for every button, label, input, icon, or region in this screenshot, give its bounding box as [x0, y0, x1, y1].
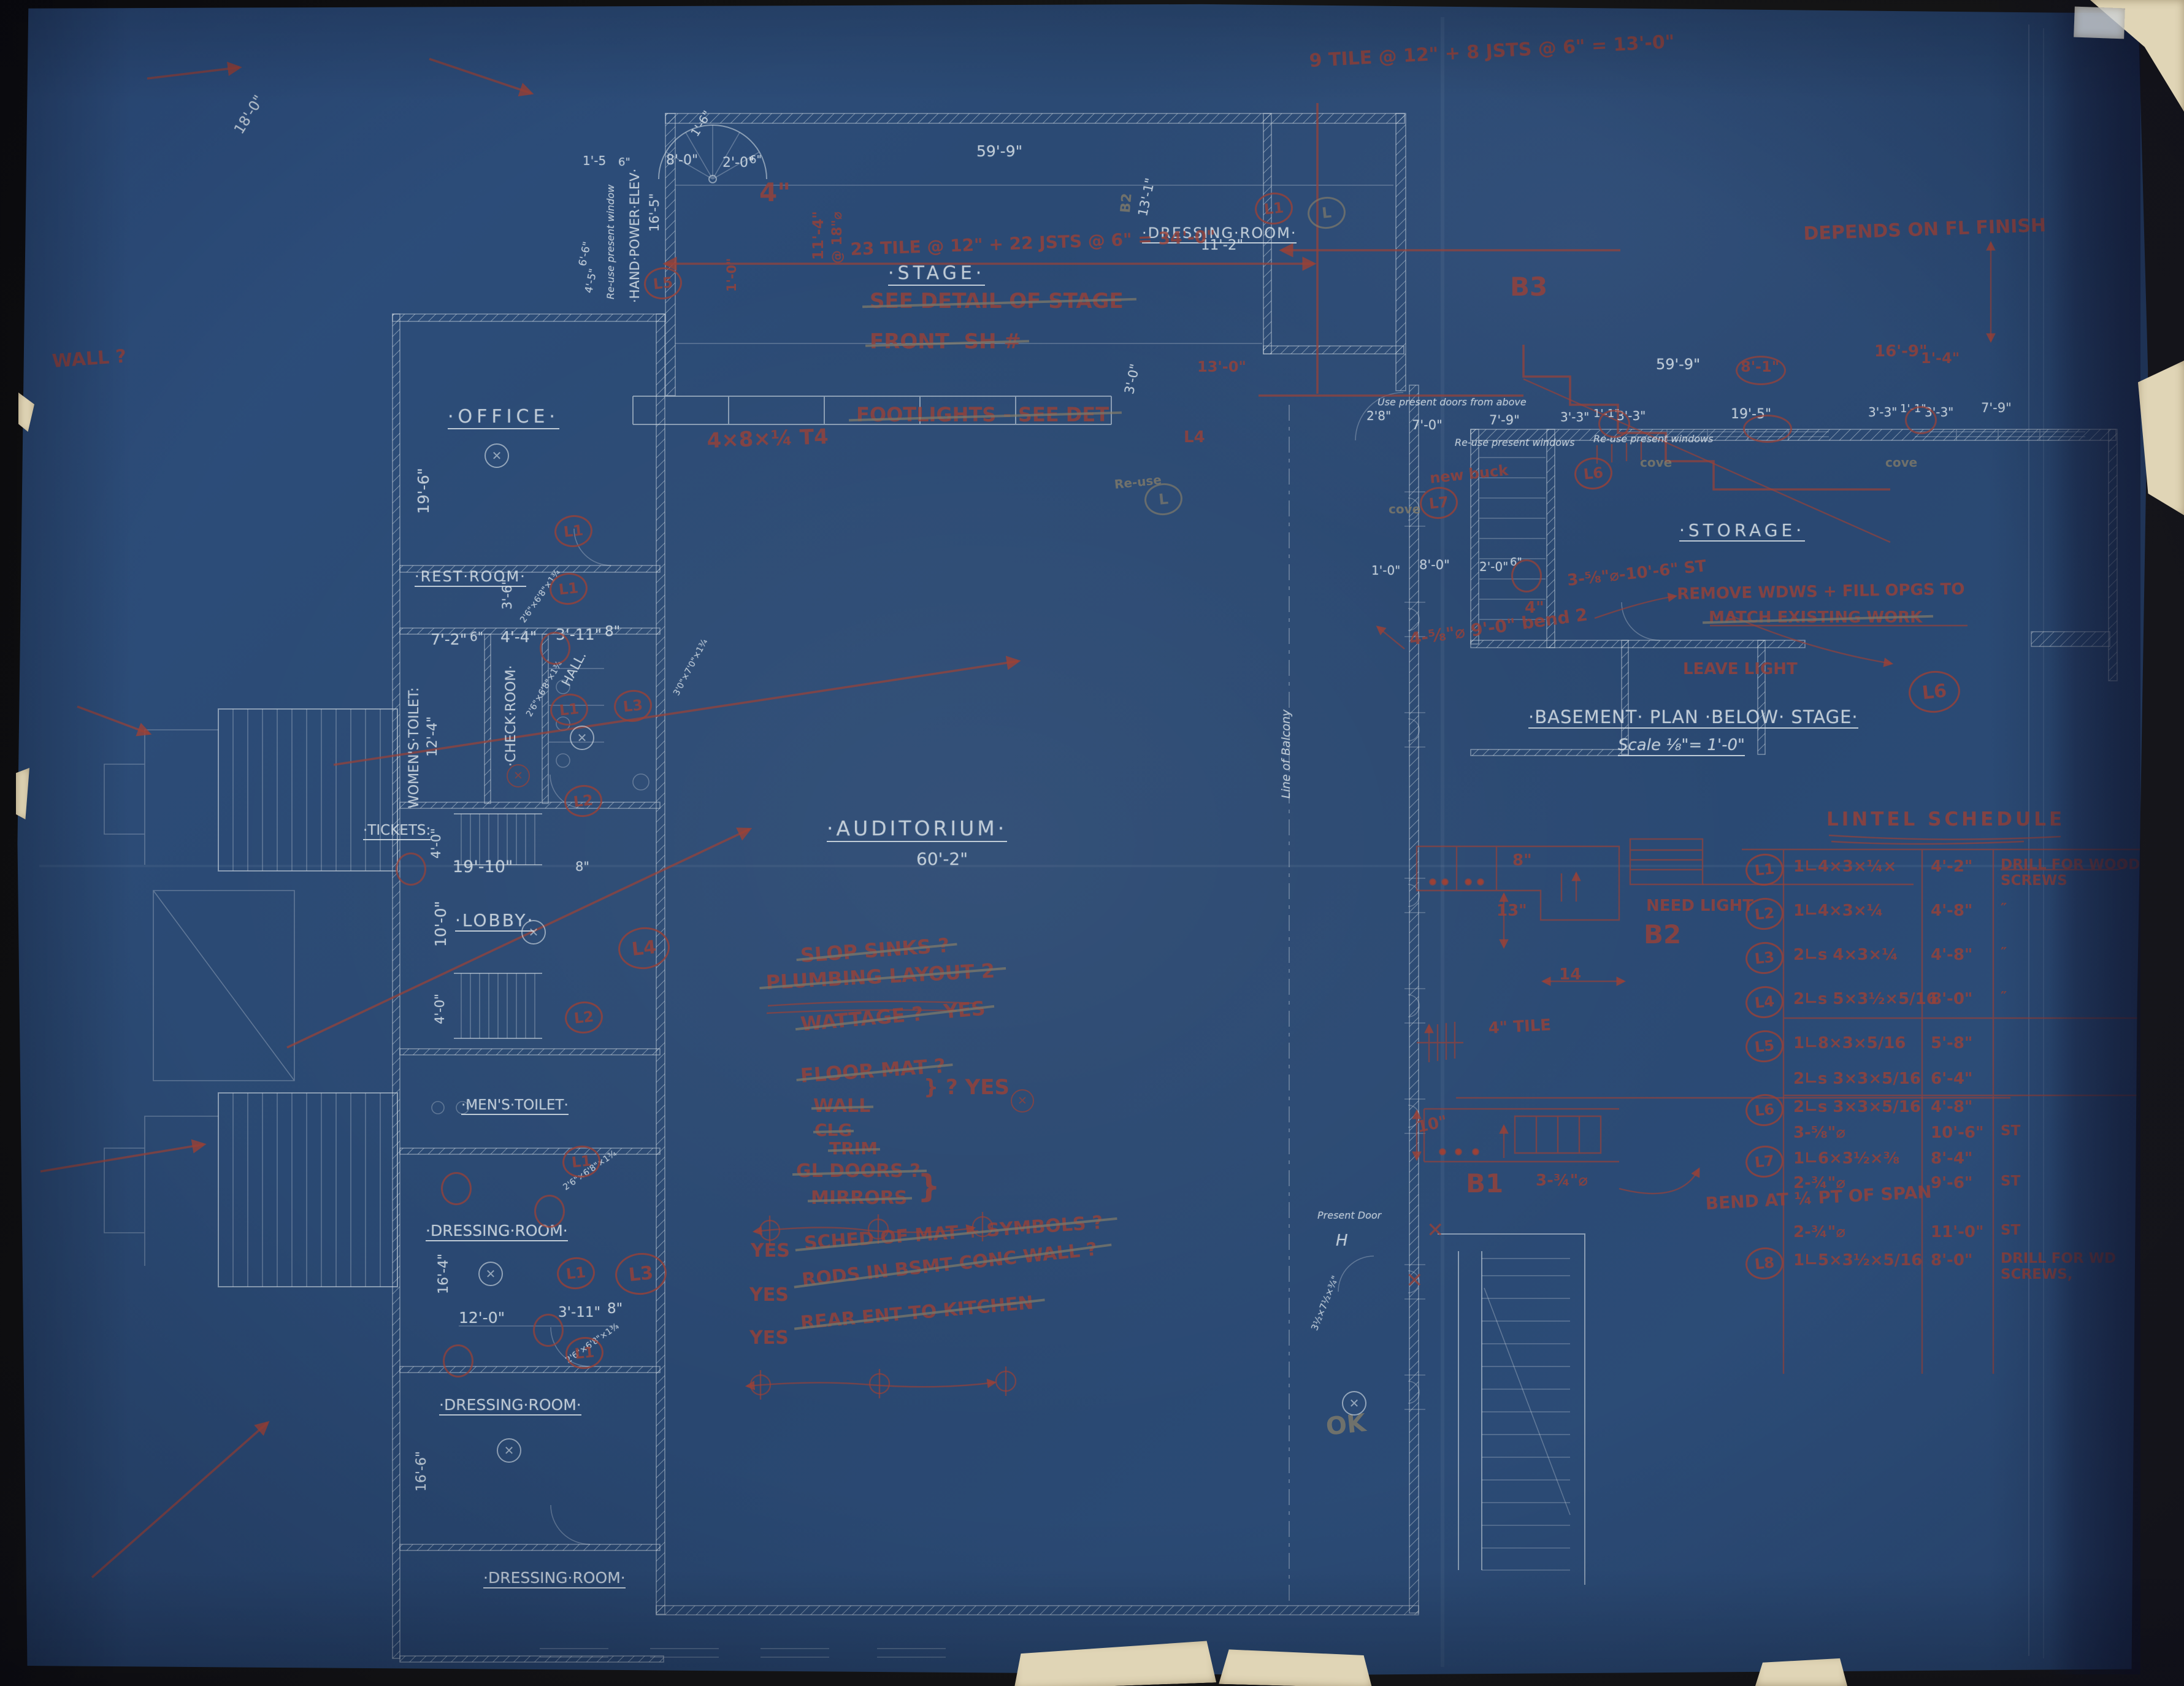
light-fixture-icon: ✕: [1011, 1089, 1034, 1113]
lintel-schedule-length: 8'-4": [1931, 1149, 1972, 1168]
lintel-schedule-size: 2∟s 5×3½×5/16: [1793, 990, 1937, 1008]
plan-label: Line of Balcony: [1281, 710, 1293, 799]
lintel-schedule-length: 10'-6": [1931, 1124, 1984, 1142]
plan-lines: [104, 125, 2085, 1657]
lintel-schedule-size: 1∟5×3½×5/16: [1793, 1251, 1922, 1270]
red-x-mark: ✕: [1406, 1268, 1423, 1293]
light-fixture-icon: ✕: [497, 1438, 521, 1463]
red-oval-mark: [441, 1172, 472, 1205]
red-oval-mark: [396, 853, 426, 886]
lintel-schedule-length: 11'-0": [1931, 1223, 1984, 1241]
red-annotation: 13": [1496, 903, 1527, 919]
red-annotation: FRONT SH #: [870, 331, 1021, 353]
red-annotation: @ 18"⌀: [830, 212, 845, 264]
red-oval-mark: [533, 1314, 564, 1347]
plan-label: ·MEN'S·TOILET·: [461, 1098, 569, 1115]
red-oval-mark: [1743, 415, 1792, 443]
lintel-schedule-length: 4'-8": [1931, 946, 1972, 964]
red-oval-mark: [540, 632, 570, 665]
red-annotation: 16'-9": [1874, 343, 1928, 360]
plan-label: 4'-0": [433, 994, 446, 1024]
red-oval-mark: [534, 1195, 565, 1228]
plan-label: ·BASEMENT· PLAN ·BELOW· STAGE·: [1528, 708, 1858, 729]
light-fixture-icon: ✕: [485, 443, 509, 468]
plan-label: ·STAGE·: [888, 264, 985, 286]
plan-label: 59'-9": [976, 144, 1022, 159]
plan-label: 19'-6": [416, 468, 432, 514]
red-x-mark: ✕: [1427, 1218, 1444, 1243]
plan-label: 2'8": [1366, 410, 1391, 423]
plan-label: ·OFFICE·: [448, 407, 559, 429]
plan-label: Re-use present window: [606, 185, 616, 299]
red-annotation: GL DOORS ?: [796, 1162, 921, 1181]
plan-label: ·STORAGE·: [1679, 521, 1805, 542]
light-fixture-icon: ✕: [478, 1262, 503, 1286]
plan-label: 8": [575, 860, 589, 873]
plan-label: ·CHECK·ROOM·: [504, 665, 518, 767]
red-annotation: 1'-0": [725, 258, 738, 292]
plan-label: 7'-9": [1489, 413, 1520, 427]
red-oval-mark: [1598, 410, 1630, 438]
plan-label: 3'-6": [500, 579, 514, 610]
plan-label: 6": [470, 630, 483, 643]
pencil-annotation: B2: [1119, 193, 1135, 213]
red-annotation: YES: [749, 1328, 789, 1348]
plan-label: Re-use present windows: [1455, 438, 1574, 448]
plan-label: WOMEN'S·TOILET:: [407, 688, 421, 808]
lintel-schedule-length: 4'-2": [1931, 857, 1972, 876]
pencil-annotation: cove: [1389, 503, 1420, 516]
red-annotation: 4": [1525, 600, 1544, 616]
red-annotation: WALL: [813, 1097, 870, 1116]
red-oval-mark: [1736, 356, 1786, 385]
plan-label: 59'-9": [1656, 357, 1700, 372]
plan-walls: [393, 113, 2117, 1662]
red-annotation: B2: [1644, 921, 1681, 948]
red-annotation: SEE DETAIL OF STAGE: [870, 291, 1124, 313]
red-annotation: 4×8×¼ T4: [707, 426, 829, 453]
sheet-edge-lines: [2029, 25, 2044, 1658]
pencil-annotation: OK: [1325, 1410, 1367, 1440]
plan-label: 1'-5: [583, 155, 606, 167]
lintel-schedule-size: 1∟4×3×¼: [1793, 902, 1883, 920]
plan-label: 3'-11": [558, 1305, 600, 1320]
plan-linework: [0, 0, 2184, 1686]
plan-label: 3'-3": [1868, 406, 1897, 419]
light-fixture-icon: ✕: [521, 920, 546, 945]
plan-label: 16'-4": [437, 1254, 451, 1294]
pencil-annotation: cove: [1640, 456, 1672, 469]
red-annotation: 11'-4": [811, 211, 826, 260]
red-annotation: WALL ?: [52, 347, 127, 372]
light-fixture-icon: ✕: [570, 726, 594, 750]
red-annotation: YES: [749, 1286, 789, 1305]
lintel-schedule-size: 2∟s 4×3×¼: [1793, 946, 1898, 964]
scanned-blueprint: LINTEL SCHEDULE ·STAGE··DRESSING·ROOM··O…: [0, 0, 2184, 1686]
red-annotation: CLG: [814, 1121, 852, 1139]
lintel-schedule-length: 9'-6": [1931, 1174, 1972, 1192]
plan-label: 1'-0": [1371, 564, 1400, 577]
red-annotation: 4": [759, 179, 791, 206]
plan-label: 12'-0": [459, 1310, 505, 1326]
red-annotation: YES: [751, 1241, 790, 1261]
red-annotation: TRIM: [829, 1140, 878, 1157]
lintel-schedule-length: 4'-8": [1931, 902, 1972, 920]
plan-label: ·HAND·POWER·ELEV·: [628, 169, 642, 303]
plan-label: 3'-3": [1560, 411, 1589, 424]
plan-label: 7'-0": [1412, 418, 1443, 432]
plan-label: 16'-5": [648, 193, 661, 232]
plan-label: H: [1336, 1233, 1348, 1249]
red-annotation: 14: [1559, 967, 1581, 983]
lintel-schedule-length: 8'-0": [1931, 1251, 1972, 1270]
lintel-schedule-title: LINTEL SCHEDULE: [1826, 808, 2065, 830]
plan-label: 12'-4": [426, 716, 440, 757]
plan-label: Present Door: [1317, 1211, 1381, 1221]
lintel-schedule-size: 2∟s 3×3×5/16: [1793, 1098, 1921, 1116]
lintel-schedule-size: 3-⅝"⌀: [1793, 1124, 1845, 1142]
plan-label: 8": [607, 1301, 623, 1316]
plan-label: 6": [618, 157, 630, 169]
lintel-schedule-size: 1∟4×3×¼×: [1793, 857, 1896, 876]
red-annotation: MIRRORS: [811, 1189, 907, 1208]
red-annotation: L4: [1184, 429, 1205, 446]
red-annotation: 4" TILE: [1488, 1017, 1552, 1038]
plan-label: ·DRESSING·ROOM·: [439, 1397, 581, 1416]
plan-label: 10'-0": [433, 901, 449, 947]
red-annotation: B1: [1466, 1170, 1503, 1197]
lintel-schedule-length: 4'-8": [1931, 1098, 1972, 1116]
red-oval-mark: [1511, 559, 1542, 592]
plan-label: ·DRESSING·ROOM·: [483, 1570, 626, 1588]
plan-label: 16'-6": [415, 1451, 429, 1492]
tape-fragment: [2074, 7, 2125, 39]
plan-label: ·AUDITORIUM·: [827, 818, 1007, 842]
red-annotation: 13'-0": [1197, 359, 1246, 375]
plan-label: 2'-0": [1479, 561, 1508, 573]
plan-label: 8'-0": [1419, 558, 1450, 572]
lintel-schedule-length: 8'-0": [1931, 990, 1972, 1008]
red-annotation: 3-¾"⌀: [1536, 1173, 1588, 1189]
red-annotation: NEED LIGHT: [1646, 898, 1753, 914]
plan-label: 8'-0": [666, 153, 698, 167]
plan-label: 8": [605, 624, 620, 639]
blueprint-sheet: LINTEL SCHEDULE ·STAGE··DRESSING·ROOM··O…: [0, 0, 2184, 1686]
sheet-edge-shadow: [2048, 12, 2140, 1674]
plan-label: Use present doors from above: [1377, 397, 1527, 408]
red-oval-mark: [443, 1344, 473, 1378]
pencil-annotation: cove: [1885, 456, 1917, 469]
plan-label: 7'-9": [1981, 401, 2012, 415]
lintel-schedule-size: 2-¾"⌀: [1793, 1223, 1845, 1241]
red-annotation: LEAVE LIGHT: [1683, 661, 1798, 678]
red-annotation: }: [918, 1170, 940, 1204]
plan-label: 6": [749, 155, 762, 166]
lintel-schedule-length: 6'-4": [1931, 1070, 1972, 1088]
red-annotation: 8": [1512, 853, 1532, 869]
lintel-schedule-size: 1∟6×3½×⅜: [1793, 1149, 1899, 1168]
plan-label: 7'-2": [431, 632, 467, 648]
red-oval-mark: [1905, 406, 1937, 434]
plan-label: 4'-0": [429, 828, 443, 859]
light-fixture-icon: ✕: [507, 764, 530, 787]
plan-label: 60'-2": [916, 850, 968, 868]
red-annotation: B3: [1510, 274, 1547, 301]
plan-label: 4'-4": [500, 629, 537, 645]
red-annotation: MATCH EXISTING WORK: [1709, 610, 1922, 626]
red-annotation: } ? YES: [924, 1077, 1010, 1099]
plan-label: 19'-10": [453, 859, 513, 876]
red-annotation: FOOTLIGHTS - SEE DET: [856, 405, 1109, 426]
lintel-schedule-size: 2∟s 3×3×5/16: [1793, 1070, 1921, 1088]
plan-label: ·TICKETS:: [363, 823, 431, 840]
lintel-schedule-length: 5'-8": [1931, 1034, 1972, 1052]
light-fixture-icon: ✕: [1342, 1391, 1366, 1416]
lintel-schedule-size: 1∟8×3×5/16: [1793, 1034, 1906, 1052]
plan-label: Scale ⅛"= 1'-0": [1618, 737, 1745, 756]
